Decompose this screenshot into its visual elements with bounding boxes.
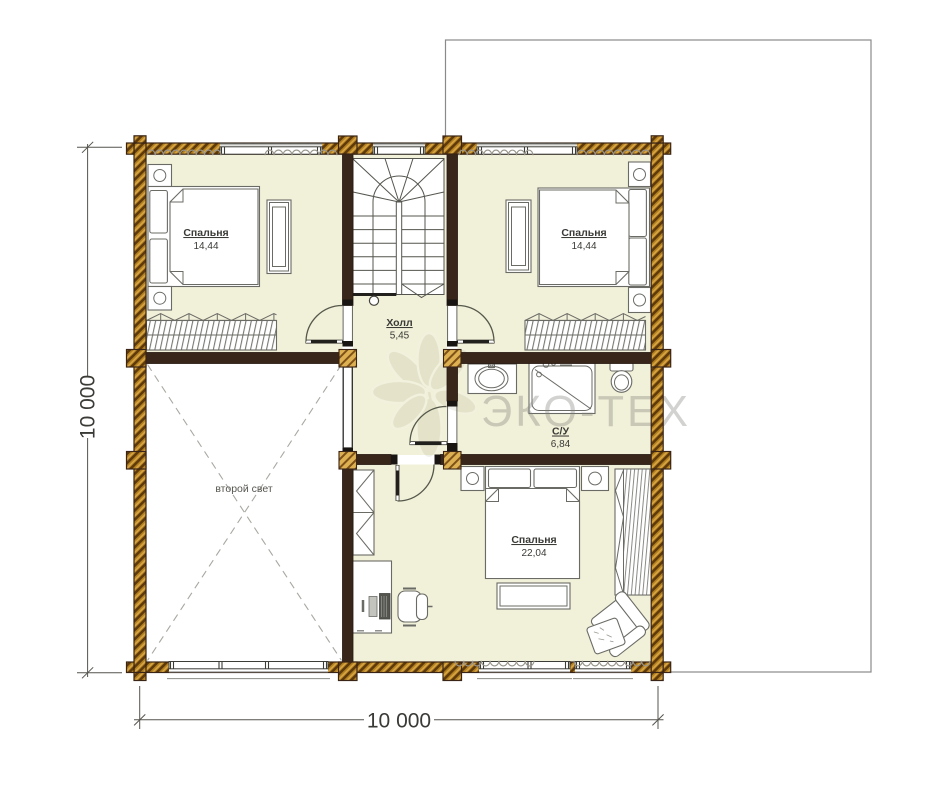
svg-text:14,44: 14,44 xyxy=(571,241,596,252)
svg-text:10 000: 10 000 xyxy=(367,709,431,732)
svg-text:Холл: Холл xyxy=(386,317,412,329)
svg-text:14,44: 14,44 xyxy=(193,241,218,252)
svg-text:Спальня: Спальня xyxy=(511,534,556,546)
svg-text:Спальня: Спальня xyxy=(183,227,228,239)
svg-text:5,45: 5,45 xyxy=(390,331,410,342)
svg-text:Спальня: Спальня xyxy=(561,227,606,239)
svg-text:6,84: 6,84 xyxy=(551,439,571,450)
svg-text:22,04: 22,04 xyxy=(521,548,546,559)
svg-text:С/У: С/У xyxy=(552,426,570,438)
svg-text:второй свет: второй свет xyxy=(215,483,273,495)
svg-text:10 000: 10 000 xyxy=(77,375,100,439)
